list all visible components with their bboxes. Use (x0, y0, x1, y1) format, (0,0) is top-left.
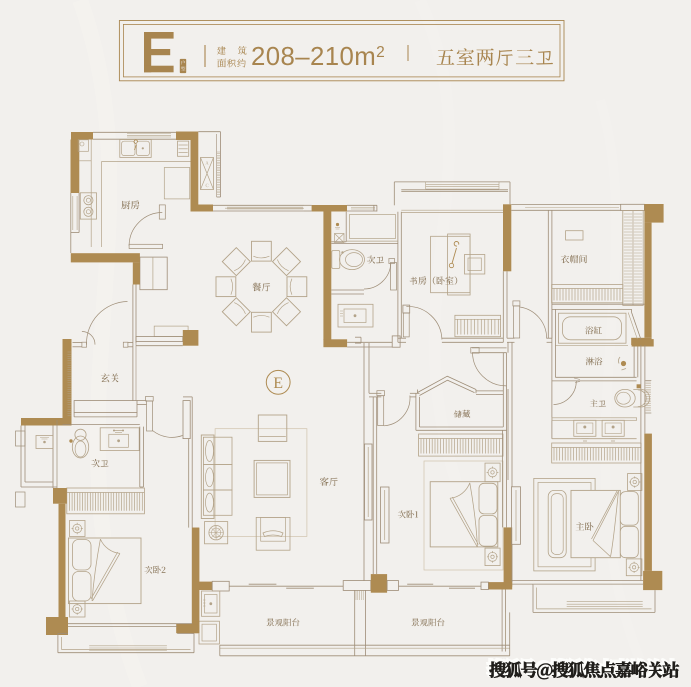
svg-text:208–210m2: 208–210m2 (251, 43, 385, 71)
